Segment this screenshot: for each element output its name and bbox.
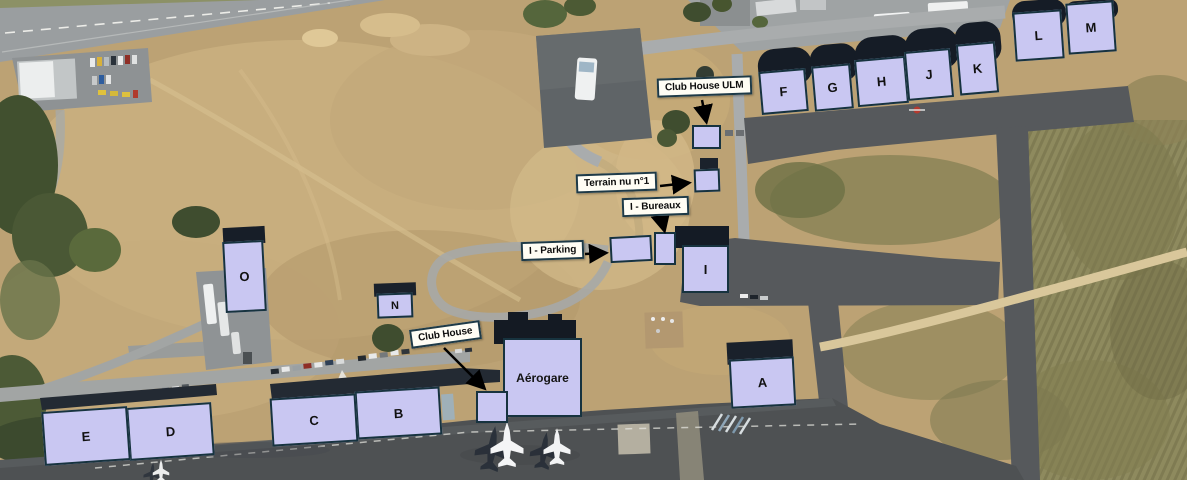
building-b[interactable]: B — [355, 386, 443, 439]
i-parking-building[interactable] — [609, 235, 652, 263]
building-e-label: E — [81, 428, 91, 444]
fuel-station — [644, 311, 683, 348]
building-a[interactable]: A — [729, 356, 796, 408]
callout-i-bureaux[interactable]: I - Bureaux — [622, 196, 689, 217]
building-a-label: A — [757, 375, 767, 390]
building-h-label: H — [876, 74, 887, 90]
building-h[interactable]: H — [854, 56, 909, 107]
building-l[interactable]: L — [1012, 9, 1064, 61]
i-bureaux-building[interactable] — [654, 232, 676, 265]
terminal-label: Aérogare — [516, 371, 569, 385]
building-i-label: I — [704, 262, 708, 277]
building-m-label: M — [1085, 20, 1097, 36]
callout-club-house-ulm[interactable]: Club House ULM — [657, 75, 752, 97]
terminal-building[interactable]: Aérogare — [503, 338, 582, 417]
building-e[interactable]: E — [41, 406, 131, 466]
building-j[interactable]: J — [904, 48, 954, 101]
building-n[interactable]: N — [377, 292, 414, 318]
building-g-label: G — [827, 80, 838, 96]
building-d[interactable]: D — [126, 402, 214, 461]
building-c[interactable]: C — [270, 393, 359, 446]
callout-terrain-nu-1[interactable]: Terrain nu n°1 — [576, 172, 658, 194]
building-i[interactable]: I — [682, 245, 729, 293]
terrain-nu-building[interactable] — [694, 169, 721, 193]
club-house-ulm-building[interactable] — [692, 125, 721, 149]
callout-i-parking[interactable]: I - Parking — [521, 240, 585, 261]
building-o[interactable]: O — [222, 240, 267, 313]
building-g[interactable]: G — [811, 63, 854, 111]
building-d-label: D — [165, 424, 175, 440]
club-house-building[interactable] — [476, 391, 508, 423]
gravel-lot — [536, 28, 652, 148]
building-j-label: J — [925, 67, 934, 83]
building-f-label: F — [779, 84, 788, 100]
aerodrome-map: A B C D E F G H I J K L M N O Aérogare C… — [0, 0, 1187, 480]
building-b-label: B — [393, 405, 403, 421]
building-f[interactable]: F — [758, 68, 809, 115]
building-k[interactable]: K — [956, 41, 999, 95]
building-n-label: N — [391, 299, 399, 311]
building-o-label: O — [239, 269, 250, 285]
building-k-label: K — [972, 61, 983, 77]
building-l-label: L — [1034, 28, 1043, 44]
building-m[interactable]: M — [1065, 0, 1116, 54]
building-c-label: C — [309, 412, 319, 428]
